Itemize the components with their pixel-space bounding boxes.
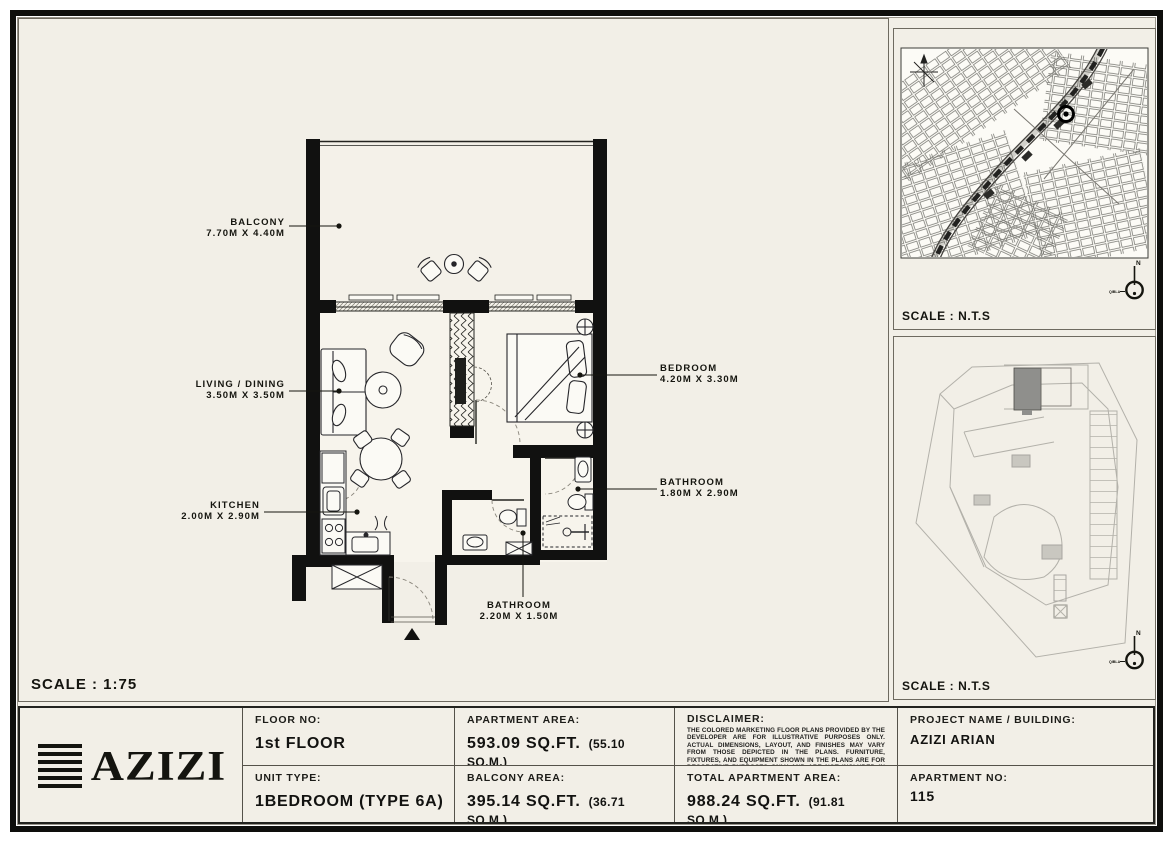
svg-text:BATHROOM: BATHROOM <box>487 600 551 611</box>
balcony-area-value: 395.14 SQ.FT.(36.71 SQ.M.) <box>467 793 664 822</box>
disclaimer-label: DISCLAIMER: <box>687 713 887 725</box>
svg-text:QIBLA: QIBLA <box>1109 660 1121 664</box>
unit-type-value: 1BEDROOM (TYPE 6A) <box>255 793 444 811</box>
entrance-door <box>389 577 435 622</box>
svg-text:7.70M X 4.40M: 7.70M X 4.40M <box>206 228 285 239</box>
floor-no-label: FLOOR NO: <box>255 714 444 726</box>
apartment-area-cell: APARTMENT AREA: 593.09 SQ.FT.(55.10 SQ.M… <box>454 708 674 765</box>
svg-text:3.50M X 3.50M: 3.50M X 3.50M <box>206 390 285 401</box>
unit-type-cell: UNIT TYPE: 1BEDROOM (TYPE 6A) <box>242 765 454 822</box>
svg-text:QIBLA: QIBLA <box>1109 290 1121 294</box>
apartment-no-cell: APARTMENT NO: 115 <box>897 765 1153 822</box>
site-plan-panel: SCALE : N.T.S N QIBLA <box>893 336 1156 700</box>
north-compass-icon: N QIBLA <box>1107 627 1149 673</box>
disclaimer-cell: DISCLAIMER: THE COLORED MARKETING FLOOR … <box>674 708 897 765</box>
project-name-cell: PROJECT NAME / BUILDING: AZIZI ARIAN <box>897 708 1153 765</box>
unit-type-label: UNIT TYPE: <box>255 772 444 784</box>
total-area-cell: TOTAL APARTMENT AREA: 988.24 SQ.FT.(91.8… <box>674 765 897 822</box>
project-name-label: PROJECT NAME / BUILDING: <box>910 714 1143 726</box>
svg-text:KITCHEN: KITCHEN <box>210 500 260 511</box>
svg-text:N: N <box>1136 630 1141 637</box>
bedroom-furniture <box>507 319 593 438</box>
floor-plan-drawing: BALCONY 7.70M X 4.40M LIVING / DINING 3.… <box>19 19 890 703</box>
svg-text:4.20M X 3.30M: 4.20M X 3.30M <box>660 374 739 385</box>
north-compass-icon: N QIBLA <box>1107 257 1149 303</box>
total-area-label: TOTAL APARTMENT AREA: <box>687 772 887 784</box>
apartment-no-value: 115 <box>910 788 1143 804</box>
site-plan-scale: SCALE : N.T.S <box>902 679 990 693</box>
floor-plan-sheet: { "plan": { "scale_label": "SCALE : 1:75… <box>0 0 1173 842</box>
svg-text:BATHROOM: BATHROOM <box>660 477 724 488</box>
entrance-arrow <box>404 628 420 640</box>
location-map-panel: SCALE : N.T.S N QIBLA <box>893 28 1156 330</box>
svg-text:N: N <box>1136 260 1141 267</box>
balcony-area-cell: BALCONY AREA: 395.14 SQ.FT.(36.71 SQ.M.) <box>454 765 674 822</box>
balcony-railing <box>307 142 607 146</box>
svg-text:LIVING / DINING: LIVING / DINING <box>196 379 285 390</box>
total-area-sqft: 988.24 SQ.FT. <box>687 793 801 810</box>
balcony-floor <box>320 145 593 302</box>
apartment-area-sqft: 593.09 SQ.FT. <box>467 735 581 752</box>
azizi-logo-text: AZIZI <box>91 745 226 787</box>
location-map-scale: SCALE : N.T.S <box>902 309 990 323</box>
svg-text:1.80M X 2.90M: 1.80M X 2.90M <box>660 488 739 499</box>
logo-cell: AZIZI <box>20 708 242 822</box>
svg-text:BALCONY: BALCONY <box>230 217 285 228</box>
floor-no-value: 1st FLOOR <box>255 735 444 753</box>
balcony-area-sqft: 395.14 SQ.FT. <box>467 793 581 810</box>
map-content <box>894 29 1155 281</box>
project-name-value: AZIZI ARIAN <box>910 732 1143 747</box>
svg-text:BEDROOM: BEDROOM <box>660 363 717 374</box>
azizi-logo-bars-icon <box>38 744 82 789</box>
total-area-value: 988.24 SQ.FT.(91.81 SQ.M.) <box>687 793 887 822</box>
main-scale-label: SCALE : 1:75 <box>31 676 137 693</box>
balcony-area-label: BALCONY AREA: <box>467 772 664 784</box>
disclaimer-text: THE COLORED MARKETING FLOOR PLANS PROVID… <box>687 727 885 765</box>
apartment-no-label: APARTMENT NO: <box>910 772 1143 784</box>
info-table: AZIZI FLOOR NO: 1st FLOOR APARTMENT AREA… <box>18 706 1155 824</box>
svg-text:2.00M X 2.90M: 2.00M X 2.90M <box>181 511 260 522</box>
floor-plan-panel: BALCONY 7.70M X 4.40M LIVING / DINING 3.… <box>18 18 889 702</box>
apartment-area-value: 593.09 SQ.FT.(55.10 SQ.M.) <box>467 735 664 765</box>
azizi-logo: AZIZI <box>38 743 226 789</box>
floor-no-cell: FLOOR NO: 1st FLOOR <box>242 708 454 765</box>
svg-text:2.20M X 1.50M: 2.20M X 1.50M <box>480 611 559 622</box>
highlighted-unit <box>1014 368 1071 415</box>
apartment-area-label: APARTMENT AREA: <box>467 714 664 726</box>
